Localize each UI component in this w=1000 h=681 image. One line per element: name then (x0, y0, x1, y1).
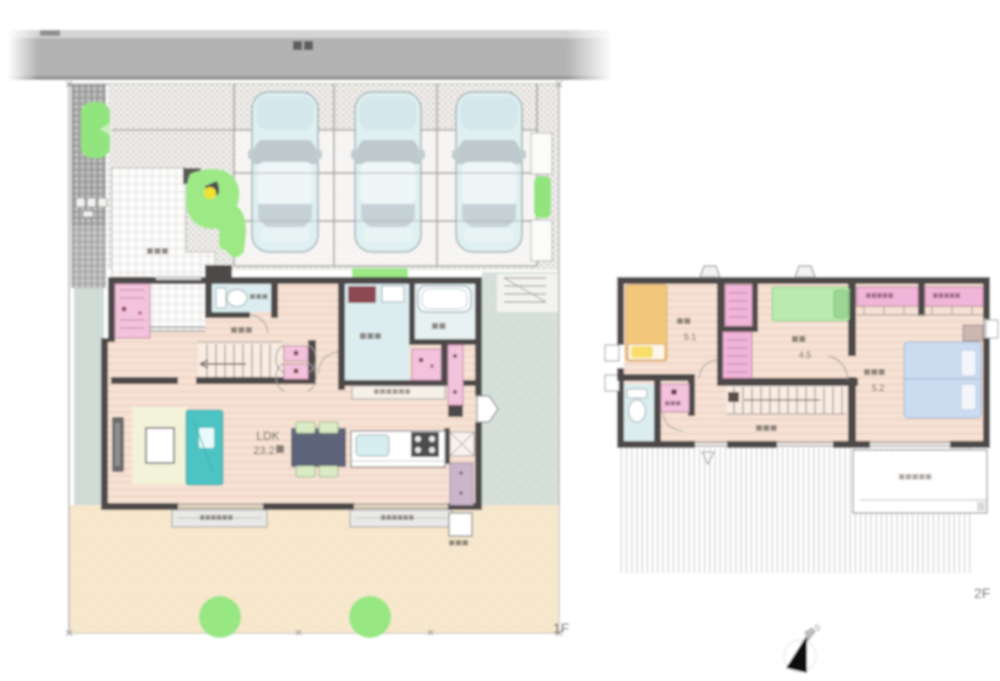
svg-text:5.2: 5.2 (872, 383, 885, 393)
svg-text:5.1: 5.1 (684, 332, 697, 342)
svg-text:23.2: 23.2 (253, 445, 274, 457)
svg-text:LDK: LDK (256, 429, 279, 443)
svg-text:4.5: 4.5 (799, 350, 812, 360)
svg-text:1F: 1F (553, 620, 569, 636)
svg-text:2F: 2F (974, 585, 990, 601)
